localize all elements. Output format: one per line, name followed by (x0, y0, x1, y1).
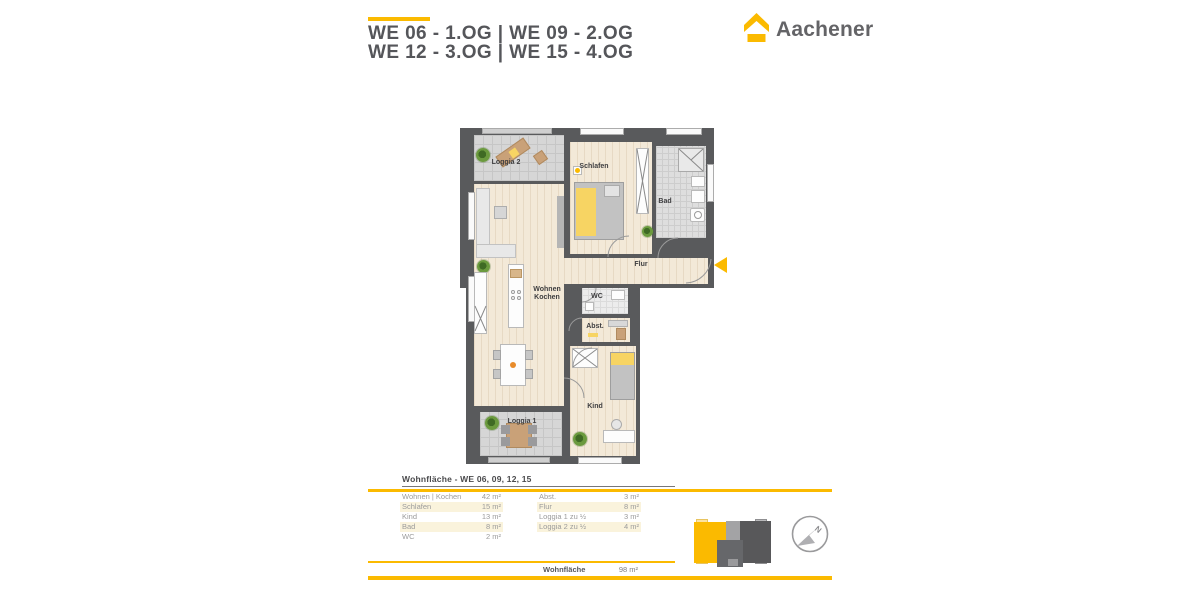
chair (525, 369, 533, 379)
row-value: 13 m² (482, 512, 501, 522)
sink-bad (691, 176, 705, 187)
bed-kind-pillow (611, 353, 634, 365)
row-value: 42 m² (482, 492, 501, 502)
plant-icon (485, 416, 499, 430)
table-row: WC 2 m² (400, 532, 503, 542)
plant-icon (476, 148, 490, 162)
table-row: Kind 13 m² (400, 512, 503, 522)
row-label: Flur (539, 502, 552, 512)
label-wohnen-kochen: WohnenKochen (533, 286, 560, 302)
table-row: Loggia 2 zu ½ 4 m² (537, 522, 641, 532)
label-bad: Bad (658, 198, 671, 206)
row-label: Abst. (539, 492, 556, 502)
loggia2-railing (482, 128, 552, 134)
window-bad-right (707, 164, 714, 202)
chair (493, 369, 501, 379)
table-row: Bad 8 m² (400, 522, 503, 532)
floor-plan: Loggia 2 Schlafen Bad Flur WohnenKochen … (458, 126, 728, 466)
area-table-title: Wohnfläche - WE 06, 09, 12, 15 (402, 474, 532, 484)
table-title-underline (402, 486, 675, 487)
row-value: 3 m² (624, 512, 639, 522)
chair (528, 437, 537, 446)
bed-blanket (576, 188, 596, 236)
desk-kind (603, 430, 635, 443)
row-label: Loggia 1 zu ½ (539, 512, 586, 522)
minimap-neighbor-unit (740, 521, 771, 563)
yellow-divider-bottom (368, 576, 832, 580)
label-schlafen: Schlafen (579, 163, 608, 171)
stove-burner-icon (511, 296, 515, 300)
row-value: 2 m² (486, 532, 501, 542)
cutting-board (510, 269, 522, 278)
chair (501, 425, 510, 434)
label-kind: Kind (587, 403, 603, 411)
label-loggia1: Loggia 1 (508, 418, 537, 426)
row-label: Kind (402, 512, 417, 522)
chair (501, 437, 510, 446)
label-wc: WC (591, 293, 603, 301)
chair (493, 350, 501, 360)
window-kind (578, 457, 622, 464)
window-schlafen (580, 128, 624, 135)
total-label: Wohnfläche (543, 564, 585, 575)
kitchen-counter (474, 272, 487, 334)
window-bad (666, 128, 702, 135)
row-label: Bad (402, 522, 415, 532)
table-row: Wohnen | Kochen 42 m² (400, 492, 503, 502)
shelf-abst (608, 320, 628, 327)
table-row: Abst. 3 m² (537, 492, 641, 502)
bed-pillow (604, 185, 620, 197)
entrance-arrow-icon (714, 257, 727, 273)
desk-chair (611, 419, 622, 430)
house-logo-icon (744, 13, 769, 47)
table-row: Loggia 1 zu ½ 3 m² (537, 512, 641, 522)
stove-burner-icon (517, 296, 521, 300)
floorplan-page: WE 06 - 1.OG | WE 09 - 2.OG WE 12 - 3.OG… (0, 0, 1200, 600)
sofa-vertical (476, 188, 490, 252)
north-arrow-icon: N (790, 514, 830, 559)
wardrobe-kind (572, 348, 598, 368)
minimap-center-entry (728, 559, 738, 566)
row-value: 3 m² (624, 492, 639, 502)
table-row: Flur 8 m² (537, 502, 641, 512)
title-accent-bar (368, 17, 430, 21)
row-label: Schlafen (402, 502, 431, 512)
row-value: 4 m² (624, 522, 639, 532)
label-kochen: Kochen (534, 294, 560, 301)
page-title-line2: WE 12 - 3.OG | WE 15 - 4.OG (368, 43, 633, 62)
row-value: 8 m² (486, 522, 501, 532)
loggia1-railing (488, 457, 550, 463)
crate-abst (616, 328, 626, 340)
row-value: 8 m² (624, 502, 639, 512)
label-abst: Abst. (586, 323, 604, 331)
page-title: WE 06 - 1.OG | WE 09 - 2.OG WE 12 - 3.OG… (368, 24, 633, 62)
tool-abst (588, 333, 598, 337)
shower (678, 148, 704, 172)
wardrobe-schlafen (636, 148, 649, 214)
yellow-divider-total-top (368, 561, 675, 563)
sofa-horizontal (476, 244, 516, 258)
label-loggia2: Loggia 2 (492, 159, 521, 167)
page-title-line1: WE 06 - 1.OG | WE 09 - 2.OG (368, 24, 633, 43)
row-value: 15 m² (482, 502, 501, 512)
sideboard (557, 196, 564, 248)
chair (528, 425, 537, 434)
fruit-bowl-icon (510, 362, 516, 368)
row-label: Wohnen | Kochen (402, 492, 461, 502)
window-wohnen-left (468, 192, 475, 240)
stove-burner-icon (511, 290, 515, 294)
chair (525, 350, 533, 360)
total-value: 98 m² (600, 564, 638, 575)
row-label: Loggia 2 zu ½ (539, 522, 586, 532)
coffee-table (494, 206, 507, 219)
sink-wc (611, 290, 625, 300)
stove-burner-icon (517, 290, 521, 294)
toilet-wc (585, 302, 594, 311)
row-label: WC (402, 532, 415, 542)
table-row: Schlafen 15 m² (400, 502, 503, 512)
label-wohnen: Wohnen (533, 286, 560, 293)
logo-text: Aachener (776, 18, 873, 42)
label-flur: Flur (634, 261, 647, 269)
washing-machine (691, 190, 705, 203)
plant-icon (573, 432, 587, 446)
toilet-bowl-icon (694, 211, 702, 219)
minimap-stairwell-block (726, 521, 741, 542)
plant-icon (642, 226, 653, 237)
company-logo: Aachener (744, 13, 873, 47)
